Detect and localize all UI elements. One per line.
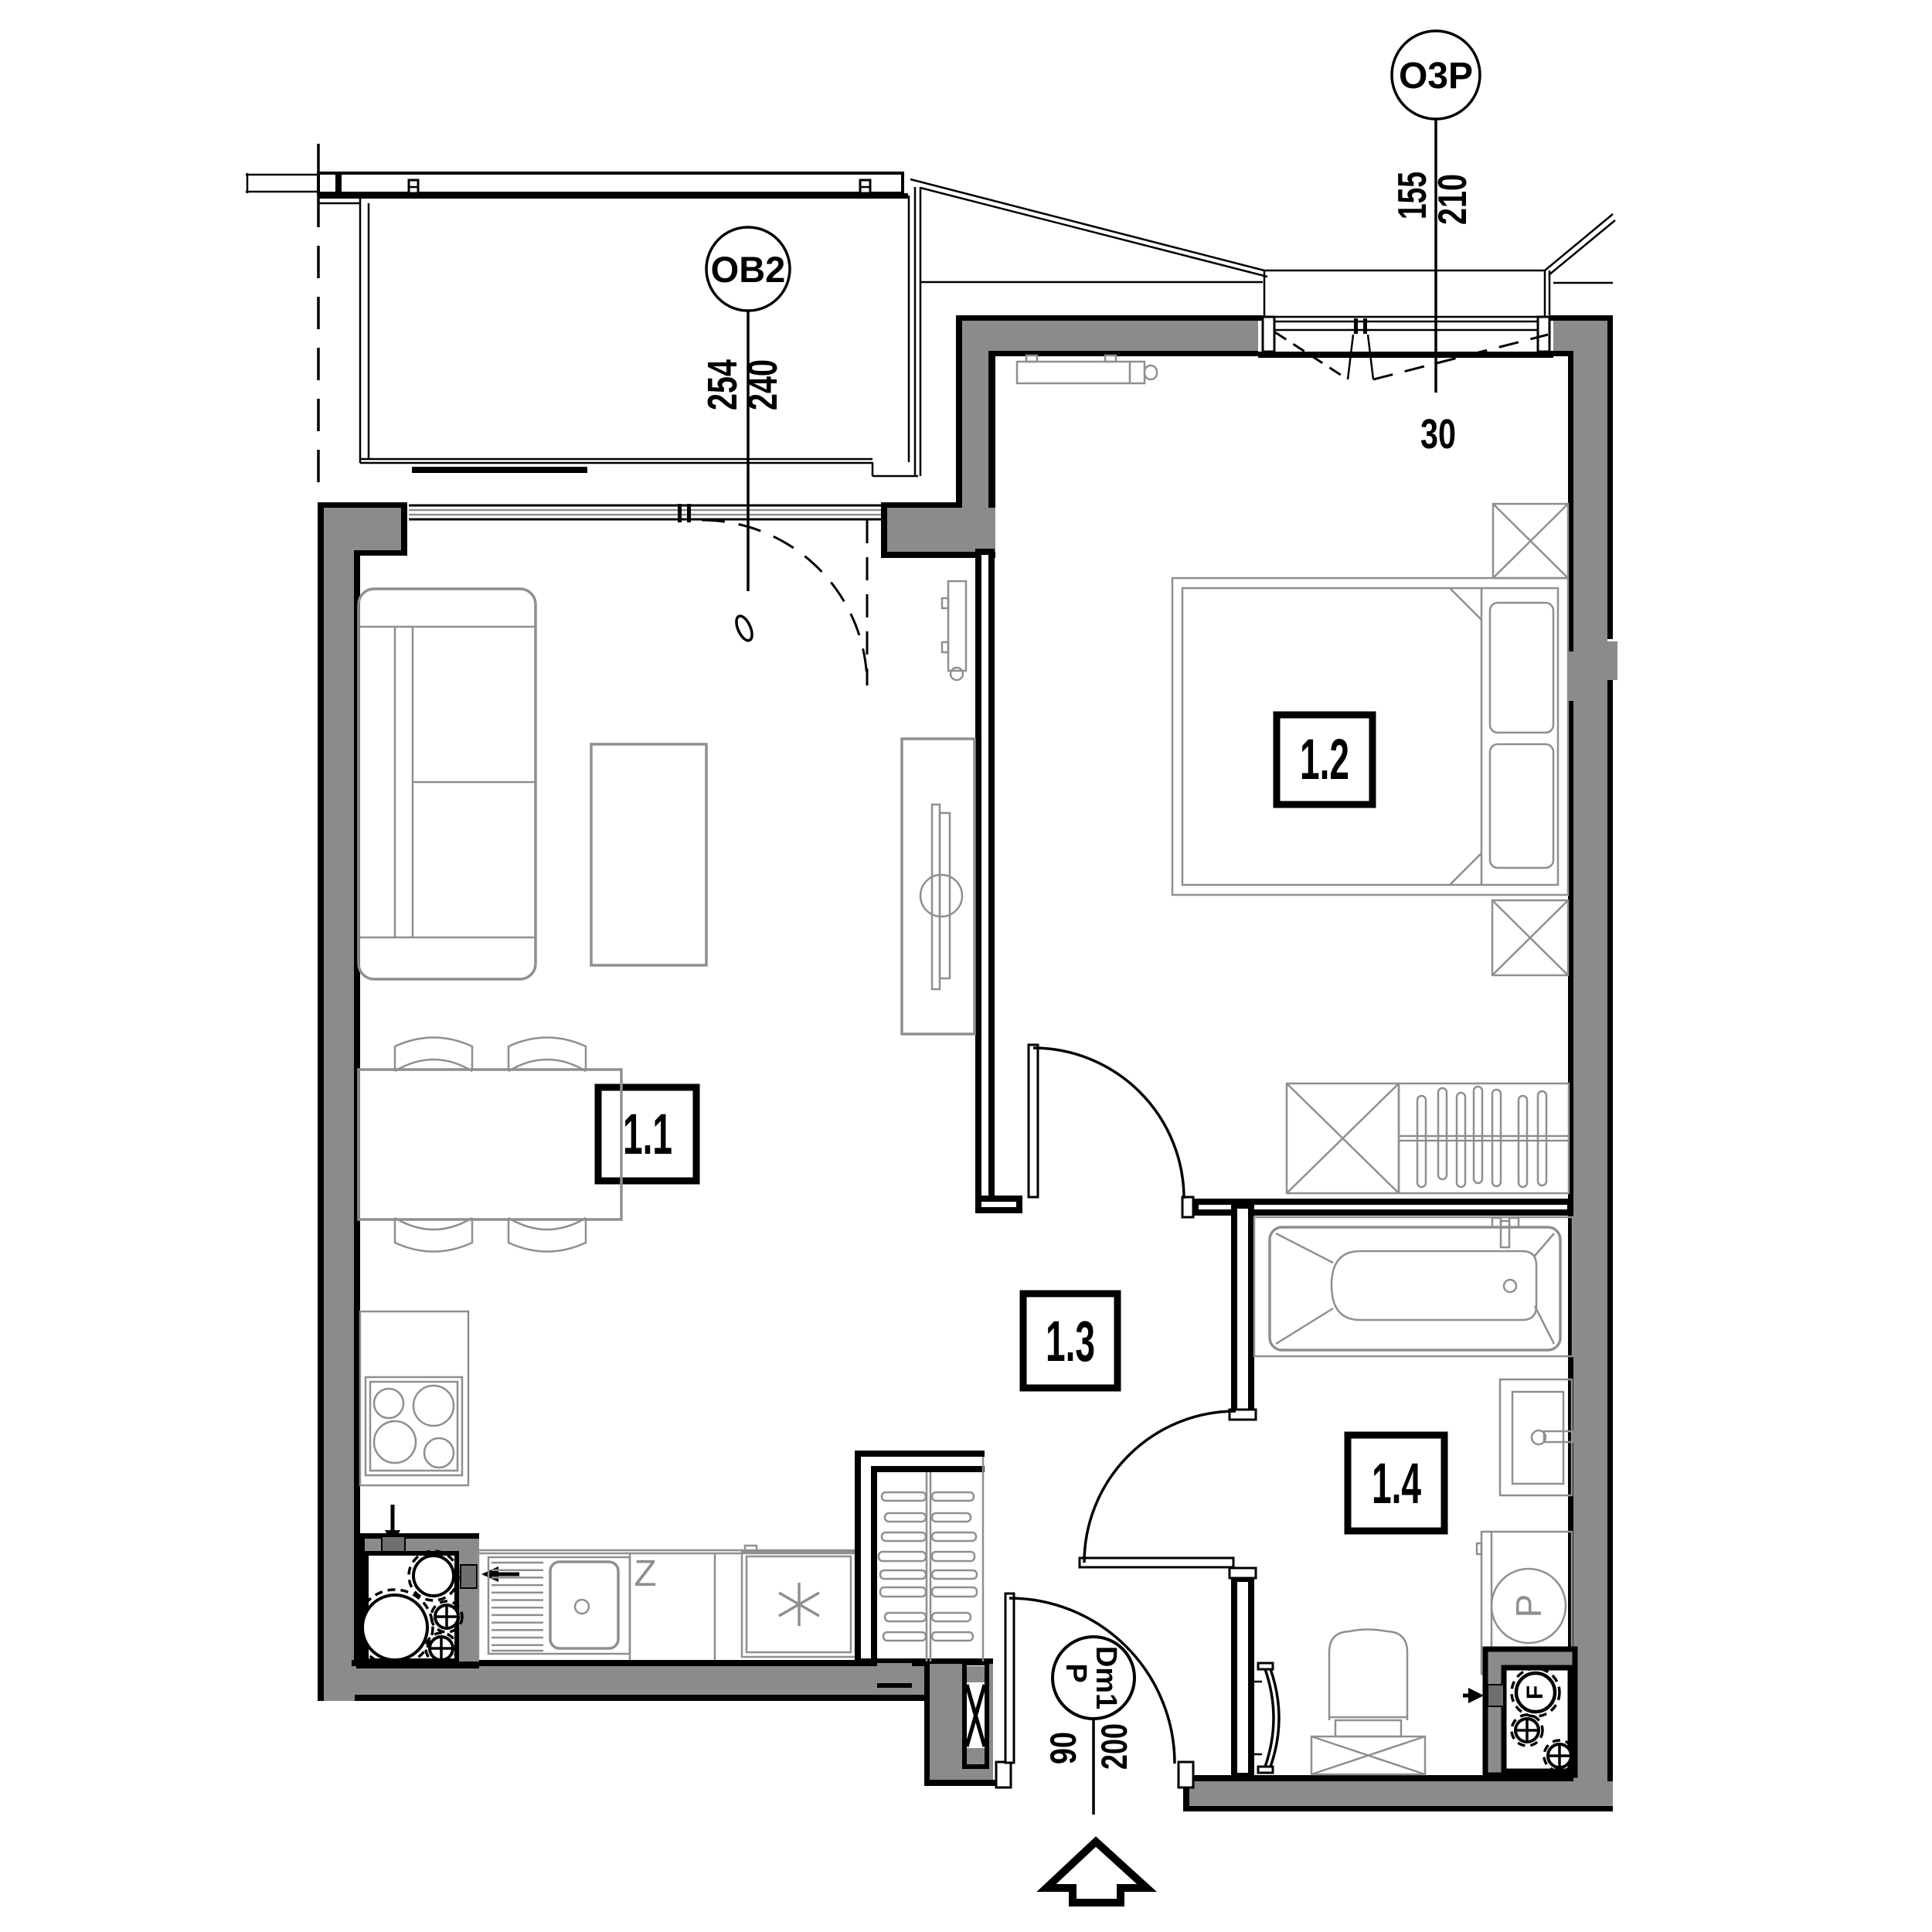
svg-text:210: 210 [1430,174,1475,225]
svg-text:O3P: O3P [1399,56,1473,97]
svg-text:254: 254 [699,359,746,410]
svg-text:240: 240 [740,359,786,410]
svg-text:1.2: 1.2 [1300,727,1349,791]
svg-text:P: P [1060,1663,1092,1682]
svg-text:Dm1: Dm1 [1090,1646,1122,1709]
svg-text:Z: Z [634,1553,656,1594]
svg-text:OB2: OB2 [711,249,786,290]
svg-text:P: P [1509,1594,1549,1618]
svg-text:30: 30 [1420,411,1456,457]
svg-text:1.1: 1.1 [623,1102,672,1166]
svg-text:1.4: 1.4 [1372,1451,1421,1515]
svg-text:F: F [1522,1685,1548,1699]
svg-text:1.3: 1.3 [1046,1309,1095,1373]
svg-text:155: 155 [1390,172,1435,219]
svg-text:200: 200 [1094,1723,1134,1770]
svg-text:90: 90 [1043,1732,1083,1764]
